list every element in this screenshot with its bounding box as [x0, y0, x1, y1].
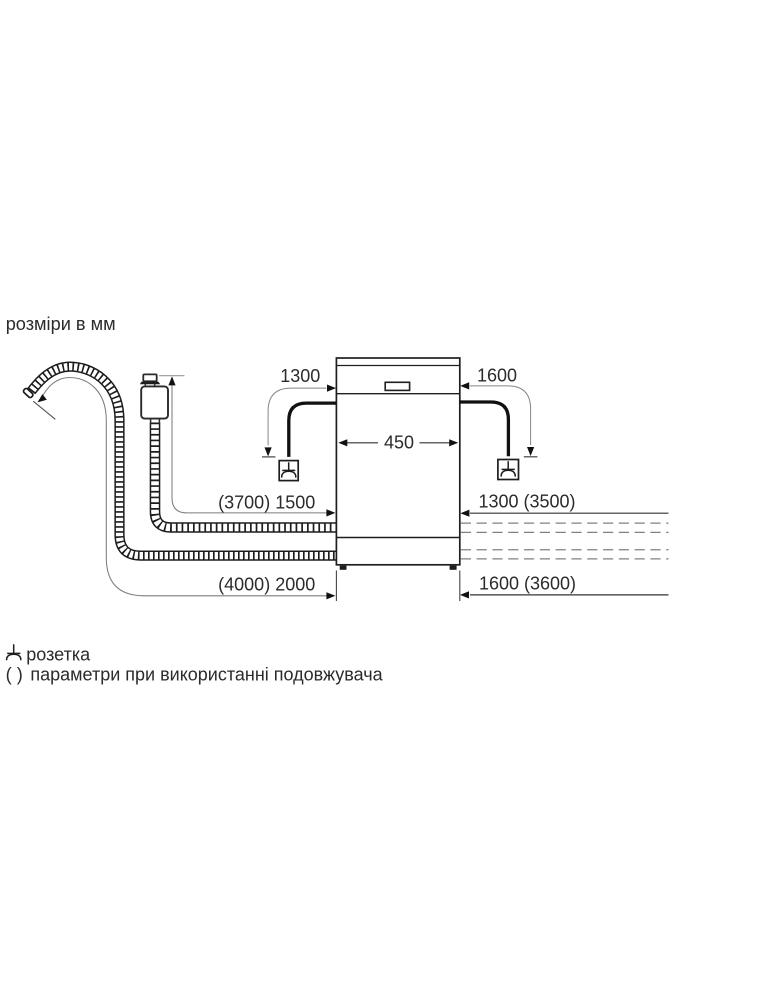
svg-text:1300: 1300 [280, 366, 320, 386]
svg-text:(3700) 1500: (3700) 1500 [218, 492, 315, 512]
svg-text:розетка: розетка [26, 644, 91, 664]
svg-text:1300 (3500): 1300 (3500) [478, 491, 575, 511]
svg-text:(4000) 2000: (4000) 2000 [218, 575, 315, 595]
svg-text:розміри в мм: розміри в мм [6, 314, 116, 334]
svg-text:( ): ( ) [6, 665, 23, 685]
svg-text:450: 450 [384, 433, 414, 453]
svg-text:1600 (3600): 1600 (3600) [479, 573, 576, 593]
svg-text:1600: 1600 [477, 366, 517, 386]
svg-text:параметри при використанні под: параметри при використанні подовжувача [30, 665, 383, 685]
